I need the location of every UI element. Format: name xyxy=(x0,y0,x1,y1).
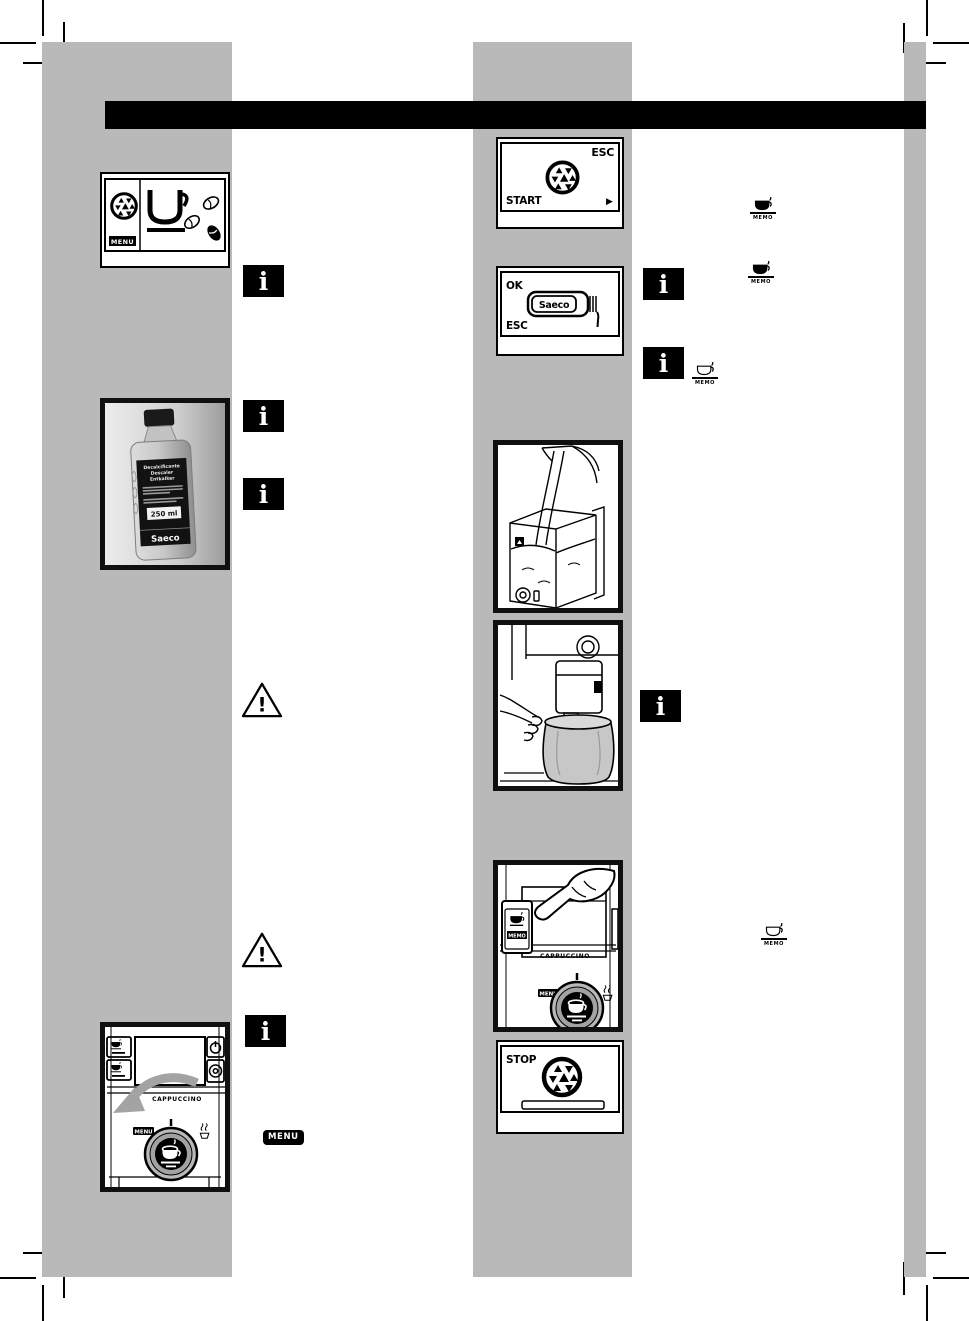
milk-container-drawing xyxy=(498,625,618,786)
figure-display-start: ESC START ▶ xyxy=(496,137,624,229)
warning-icon: ! xyxy=(240,681,284,719)
svg-text:CAPPUCCINO: CAPPUCCINO xyxy=(152,1096,202,1103)
display-menu-drawing: MENU xyxy=(102,174,228,266)
crop-mark xyxy=(926,0,928,36)
info-icon: i xyxy=(243,478,284,510)
svg-text:MEMO: MEMO xyxy=(508,933,526,939)
crop-mark xyxy=(42,0,44,36)
svg-text:!: ! xyxy=(257,942,266,966)
rotary-dial xyxy=(551,973,603,1027)
info-icon: i xyxy=(243,265,284,297)
crop-mark xyxy=(0,42,36,44)
svg-text:Saeco: Saeco xyxy=(539,300,570,311)
memo-button-module: MEMO xyxy=(502,901,532,953)
figure-press-memo-button: MEMO CAPPUCCINO MENU xyxy=(493,860,623,1032)
display-start-drawing: ESC START ▶ xyxy=(498,139,622,227)
manual-page: { "page": { "background": "#ffffff", "co… xyxy=(0,0,969,1321)
crop-mark xyxy=(0,1277,36,1279)
svg-text:Saeco: Saeco xyxy=(151,533,180,544)
info-icon: i xyxy=(643,268,684,300)
crop-mark xyxy=(926,1285,928,1321)
svg-text:STOP: STOP xyxy=(506,1054,537,1066)
display-stop-drawing: STOP xyxy=(498,1042,622,1132)
svg-text:CAPPUCCINO: CAPPUCCINO xyxy=(540,953,590,960)
figure-descaler-bottle: Decalcificante Descaler Entkalker 250 ml… xyxy=(100,398,230,570)
saucer-line xyxy=(748,276,774,278)
figure-water-tank xyxy=(493,440,623,613)
warning-icon: ! xyxy=(240,931,284,969)
memo-cup-icon: MEMO xyxy=(690,362,720,386)
svg-text:Descaler: Descaler xyxy=(151,470,174,477)
figure-display-stop: STOP xyxy=(496,1040,624,1134)
crop-mark xyxy=(933,1277,969,1279)
svg-text:ESC: ESC xyxy=(506,320,528,332)
water-tank-drawing xyxy=(498,445,618,608)
svg-text:!: ! xyxy=(257,692,266,716)
crop-mark xyxy=(933,42,969,44)
pointing-hand xyxy=(535,869,615,920)
figure-container-under-spout xyxy=(493,620,623,791)
aroma-button-icon xyxy=(210,1065,222,1077)
arrow-right-icon: ▶ xyxy=(606,197,613,207)
progress-bar xyxy=(522,1101,604,1109)
press-button-drawing: MEMO CAPPUCCINO MENU xyxy=(498,865,618,1027)
steam-icon xyxy=(603,985,612,1000)
svg-text:250 ml: 250 ml xyxy=(151,509,178,518)
memo-cup-icon: MEMO xyxy=(748,197,778,221)
svg-text:START: START xyxy=(506,195,542,207)
menu-tag: MENU xyxy=(109,236,136,246)
steam-icon xyxy=(200,1123,209,1138)
right-gray-strip xyxy=(904,42,926,1277)
water-stream xyxy=(536,451,554,545)
info-icon: i xyxy=(243,400,284,432)
descaler-bottle-photo: Decalcificante Descaler Entkalker 250 ml… xyxy=(105,403,225,565)
svg-text:MENU: MENU xyxy=(111,238,134,246)
coffee-button-icon xyxy=(111,1062,121,1072)
espresso-button-icon xyxy=(111,1039,121,1049)
svg-text:ESC: ESC xyxy=(591,146,614,159)
memo-cup-icon: MEMO xyxy=(746,261,776,285)
machine-dial-drawing: CAPPUCCINO MENU xyxy=(105,1027,225,1187)
info-icon: i xyxy=(245,1015,286,1047)
info-icon: i xyxy=(643,347,684,379)
figure-display-ok-saeco: OK ESC Saeco xyxy=(496,266,624,356)
chapter-header-bar xyxy=(105,101,926,129)
crop-mark xyxy=(42,1285,44,1321)
saucer-line xyxy=(761,938,787,940)
memo-cup-icon: MEMO xyxy=(759,923,789,947)
saucer-line xyxy=(750,212,776,214)
display-ok-drawing: OK ESC Saeco xyxy=(498,268,622,354)
svg-text:OK: OK xyxy=(506,280,524,292)
milk-jug xyxy=(543,715,614,784)
menu-key-badge: MENU xyxy=(263,1130,304,1145)
saucer-line xyxy=(692,377,718,379)
svg-text:MENU: MENU xyxy=(134,1130,152,1136)
figure-machine-dial-to-menu: CAPPUCCINO MENU xyxy=(100,1022,230,1192)
figure-display-menu: MENU xyxy=(100,172,230,268)
info-icon: i xyxy=(640,690,681,722)
